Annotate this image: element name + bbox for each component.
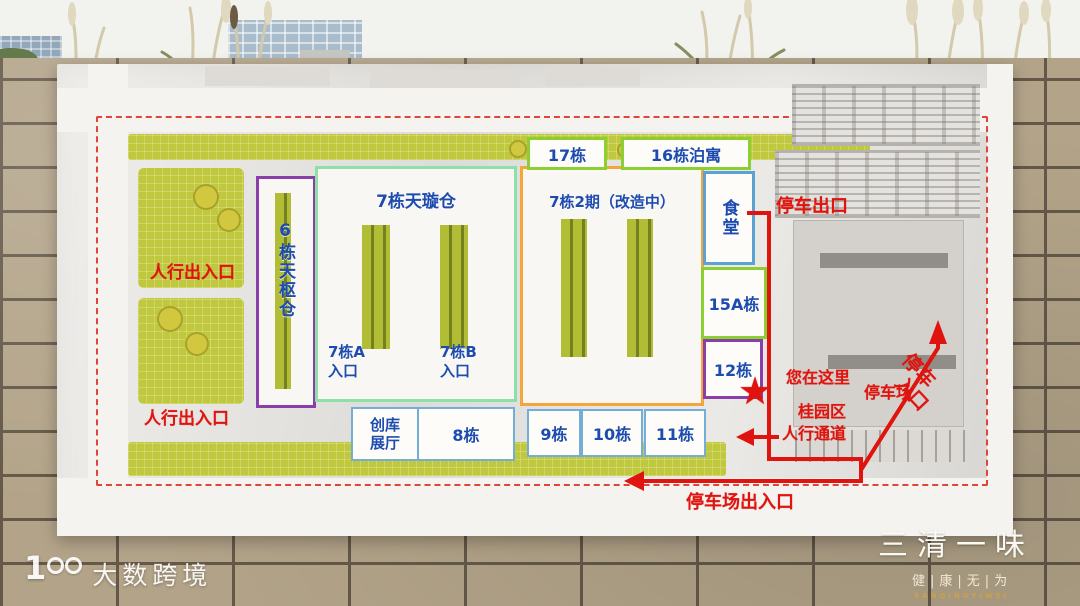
tree (157, 306, 183, 332)
building-7a-line1: 7栋A (328, 343, 365, 362)
building-6-outline: 6栋天枢仓 (256, 176, 316, 408)
you-are-here-label: 您在这里 (786, 364, 850, 388)
building-8-label: 8栋 (452, 422, 479, 446)
chuangku-line1: 创库 (370, 416, 400, 434)
watermark-left: 1 大数跨境 (24, 552, 212, 592)
you-are-here-star: ★ (738, 372, 772, 410)
chuangku-gallery-box: 创库 展厅 (351, 407, 419, 461)
building-10-box: 10栋 (581, 409, 643, 457)
phase2-roof-strip (561, 219, 587, 357)
lawn-strip-top (128, 134, 870, 160)
building-7-roof-strip (362, 225, 390, 349)
watermark-left-text: 大数跨境 (92, 556, 212, 592)
watermark-logo-ring (65, 557, 82, 574)
building-7-phase2-title: 7栋2期（改造中） (523, 191, 701, 212)
building-7-title: 7栋天璇仓 (318, 187, 514, 212)
garage-slab (820, 253, 948, 268)
tree (193, 184, 219, 210)
building-9-box: 9栋 (527, 409, 581, 457)
watermark-logo-ring (47, 557, 64, 574)
parking-exit-label: 停车出口 (776, 192, 848, 218)
building-7b-entrance-label: 7栋B 入口 (440, 343, 477, 381)
building-15a-box: 15A栋 (701, 267, 767, 339)
building-7b-line2: 入口 (440, 362, 477, 381)
building-7b-line1: 7栋B (440, 343, 477, 362)
building-7a-line2: 入口 (328, 362, 365, 381)
building-7: 7栋天璇仓 7栋A 入口 7栋B 入口 (315, 166, 517, 402)
tree (217, 208, 241, 232)
reed-seed-head (230, 5, 238, 29)
parking-stalls-row (792, 84, 980, 146)
area-name-label: 桂园区 (798, 398, 846, 422)
building-7-roof-strip (440, 225, 468, 349)
chuangku-gallery-label: 创库 展厅 (370, 416, 400, 452)
building-10-label: 10栋 (593, 421, 631, 445)
parking-garage: 停车场 (793, 220, 964, 427)
tree (185, 332, 209, 356)
building-17-label: 17栋 (548, 142, 586, 166)
offsite-footprint (205, 66, 330, 86)
pedestrian-gate-bottom-label: 人行出入口 (144, 404, 229, 429)
building-11-label: 11栋 (656, 421, 694, 445)
phase2-roof-strip (627, 219, 653, 357)
watermark-logo-digit: 1 (24, 552, 46, 584)
building-9-label: 9栋 (540, 421, 567, 445)
building-8-box: 8栋 (417, 407, 515, 461)
brand-watermark: 三清一味 健|康|无|为 SANQINGYIWEI (878, 520, 1034, 600)
pedestrian-passage-label: 人行通道 (782, 420, 846, 444)
building-7-phase2: 7栋2期（改造中） (520, 166, 704, 406)
building-16-box: 16栋泊寓 (621, 137, 751, 170)
canteen-box: 食堂 (703, 171, 755, 265)
site-map-board: 6栋天枢仓 7栋天璇仓 7栋A 入口 7栋B 入口 7栋2期（改造中） 17栋 (57, 64, 1013, 536)
road-right (987, 64, 1013, 536)
pedestrian-gate-top-label: 人行出入口 (150, 258, 235, 283)
building-7a-entrance-label: 7栋A 入口 (328, 343, 365, 381)
building-16-label: 16栋泊寓 (651, 142, 721, 166)
brand-tagline: 健|康|无|为 (912, 570, 1034, 589)
building-15a-label: 15A栋 (709, 291, 760, 315)
building-17-box: 17栋 (527, 137, 607, 170)
chuangku-line2: 展厅 (370, 434, 400, 452)
site-map-photo: 6栋天枢仓 7栋天璇仓 7栋A 入口 7栋B 入口 7栋2期（改造中） 17栋 (0, 0, 1080, 606)
tree (509, 140, 527, 158)
offsite-footprint (370, 70, 520, 88)
canteen-label: 食堂 (717, 199, 742, 237)
parking-gate-label: 停车场出入口 (686, 488, 794, 514)
brand-title: 三清一味 (878, 520, 1034, 564)
brand-latin: SANQINGYIWEI (914, 592, 1034, 600)
road-bottom (57, 478, 1013, 536)
building-6-label: 6栋天枢仓 (273, 221, 298, 319)
offsite-footprint (545, 67, 640, 86)
building-11-box: 11栋 (644, 409, 706, 457)
